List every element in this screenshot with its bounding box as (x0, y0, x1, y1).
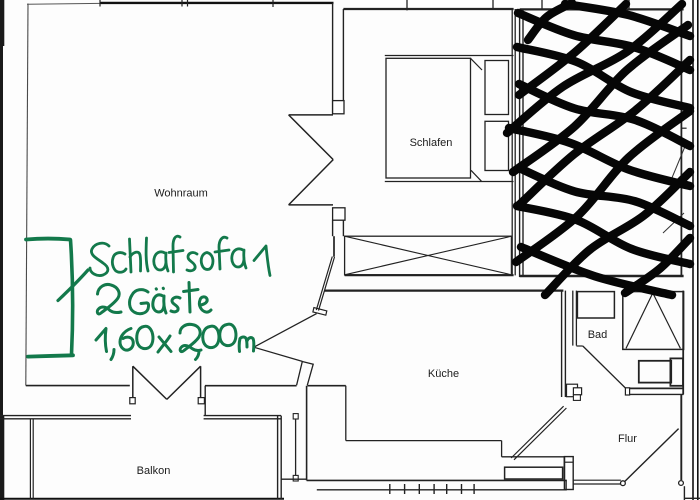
svg-text:Küche: Küche (428, 368, 459, 380)
svg-text:Balkon: Balkon (137, 465, 171, 477)
svg-text:Wohnraum: Wohnraum (154, 187, 208, 199)
svg-text:Bad: Bad (588, 329, 608, 341)
svg-text:Flur: Flur (618, 433, 637, 445)
svg-text:Schlafen: Schlafen (410, 137, 453, 149)
